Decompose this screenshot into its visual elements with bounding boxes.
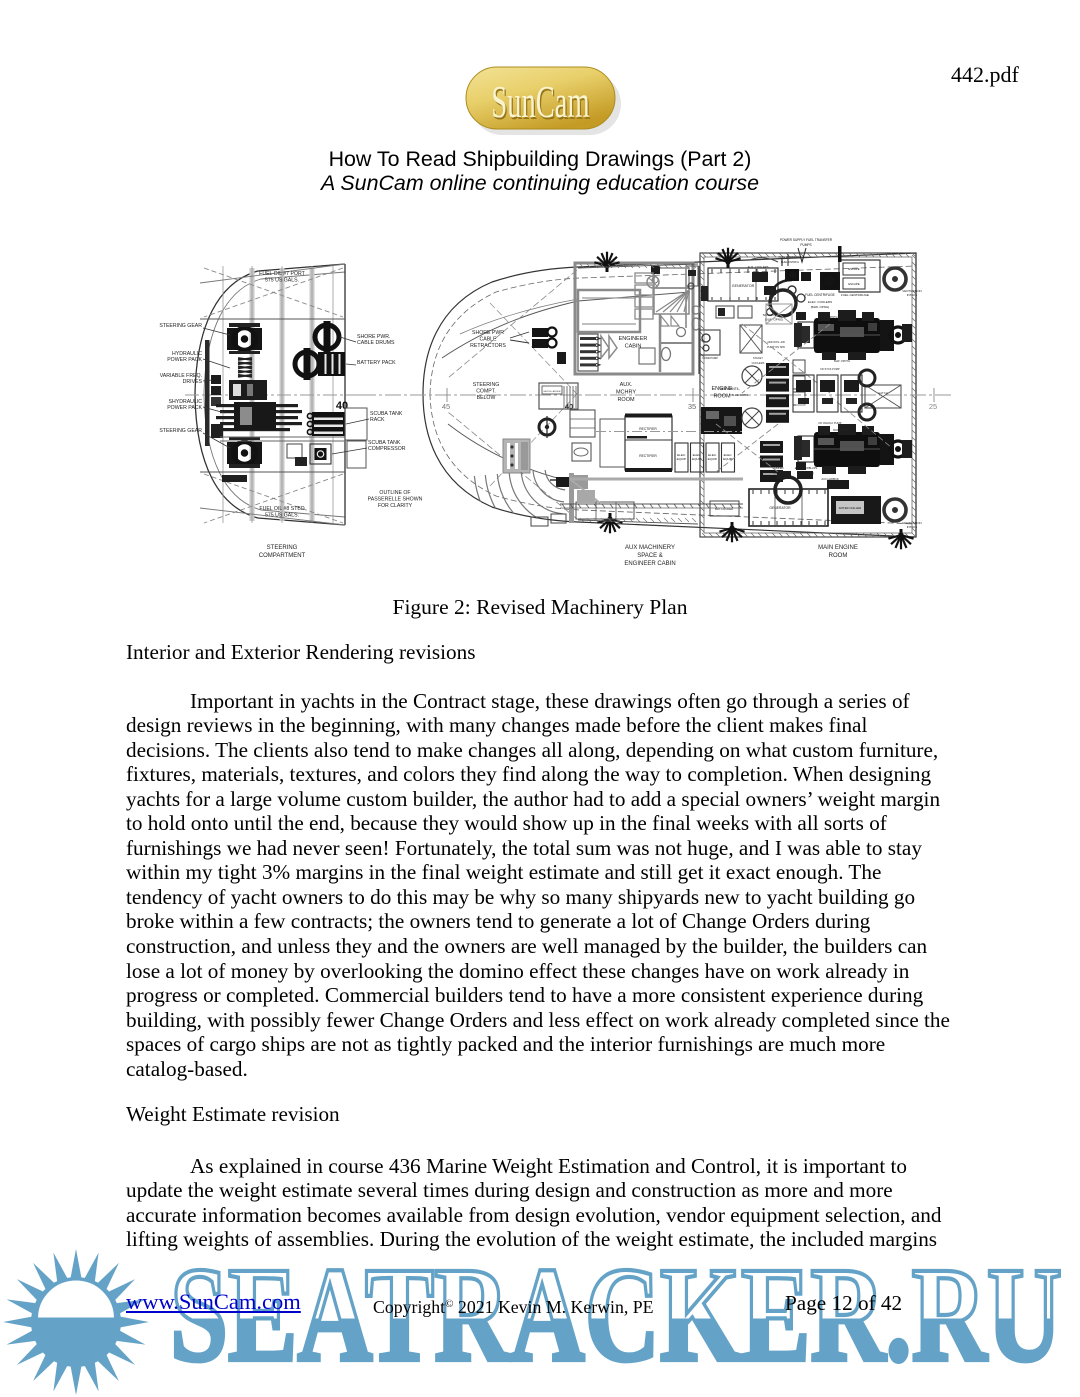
svg-text:INTAKE: INTAKE <box>907 293 918 297</box>
svg-text:FUEL CENTRIFUGE: FUEL CENTRIFUGE <box>805 293 835 297</box>
svg-text:FD STCK PUMP: FD STCK PUMP <box>820 367 840 371</box>
svg-text:PUMP ON SPD: PUMP ON SPD <box>767 345 785 349</box>
svg-text:FUEL OIL #8 STBD: FUEL OIL #8 STBD <box>259 506 304 512</box>
svg-text:AUX MACHINERY: AUX MACHINERY <box>625 545 675 551</box>
svg-text:575 US GALS.: 575 US GALS. <box>265 278 299 284</box>
svg-text:ESCAPE: ESCAPE <box>848 282 859 286</box>
svg-text:MCHRY: MCHRY <box>616 390 636 396</box>
svg-text:FUEL CNTRFG: FUEL CNTRFG <box>781 260 799 264</box>
svg-text:ENGINEER CABIN: ENGINEER CABIN <box>624 561 675 567</box>
svg-text:CABLE: CABLE <box>479 337 497 343</box>
svg-text:WATER CHILLER: WATER CHILLER <box>839 506 861 510</box>
svg-text:AUX. COOLERS: AUX. COOLERS <box>748 265 769 269</box>
svg-text:ADD NOS- AIR: ADD NOS- AIR <box>767 340 785 344</box>
svg-text:45: 45 <box>442 402 450 411</box>
svg-text:HATCH LADDER: HATCH LADDER <box>544 390 561 393</box>
svg-text:VARIABLE FREQ.: VARIABLE FREQ. <box>160 373 202 379</box>
svg-text:PUMPS: PUMPS <box>800 243 811 247</box>
svg-text:(BLW. OPNG): (BLW. OPNG) <box>811 305 830 309</box>
svg-text:25: 25 <box>929 402 937 411</box>
svg-text:SHORE PWR.: SHORE PWR. <box>357 334 390 340</box>
svg-text:GENERATOR: GENERATOR <box>732 284 755 288</box>
svg-text:ENGINE: ENGINE <box>711 386 732 392</box>
svg-text:STEERING GEAR: STEERING GEAR <box>159 428 202 434</box>
svg-text:STEERING: STEERING <box>473 382 500 388</box>
svg-text:BLUE. CNTFL: BLUE. CNTFL <box>732 393 749 397</box>
svg-text:COMPARTMENT: COMPARTMENT <box>259 553 306 559</box>
svg-text:INTAKE: INTAKE <box>907 525 918 529</box>
svg-text:DRIVES: DRIVES <box>183 379 203 385</box>
svg-text:SHORE PWR: SHORE PWR <box>472 330 504 336</box>
svg-text:COOLERS: COOLERS <box>752 361 765 365</box>
svg-text:SCUBA TANK: SCUBA TANK <box>368 440 401 446</box>
svg-text:ENGINEER: ENGINEER <box>619 336 648 342</box>
svg-text:BLW OPNTG: BLW OPNTG <box>822 315 837 319</box>
svg-text:ROOM: ROOM <box>713 394 731 400</box>
svg-text:ESCAPE: ESCAPE <box>848 267 859 271</box>
svg-text:EQUIP.: EQUIP. <box>677 457 687 461</box>
svg-text:35: 35 <box>688 402 696 411</box>
svg-text:BELOW: BELOW <box>477 395 496 401</box>
svg-text:STACEY: STACEY <box>753 356 763 360</box>
svg-text:40: 40 <box>336 400 348 412</box>
svg-text:SHYDRAULIC: SHYDRAULIC <box>169 399 203 405</box>
svg-text:COMPRESSOR: COMPRESSOR <box>368 446 406 452</box>
svg-text:AUX.: AUX. <box>620 382 633 388</box>
svg-text:GENERATOR: GENERATOR <box>769 506 791 510</box>
svg-text:FUEL CENTRIFUGE: FUEL CENTRIFUGE <box>841 293 869 297</box>
svg-text:STEERING GEAR: STEERING GEAR <box>159 323 202 329</box>
svg-text:ROOM: ROOM <box>617 397 635 403</box>
svg-text:FUEL CONTINUGE: FUEL CONTINUGE <box>779 255 802 259</box>
svg-text:BATTERY PACK: BATTERY PACK <box>357 360 396 366</box>
svg-text:BAT. LOCKER: BAT. LOCKER <box>715 507 733 511</box>
svg-text:POWER PACK: POWER PACK <box>167 357 202 363</box>
svg-text:SunCam: SunCam <box>491 77 589 127</box>
svg-text:HATCH: HATCH <box>878 391 888 395</box>
svg-text:RECTIFIER: RECTIFIER <box>639 454 657 458</box>
svg-text:(OPNL): (OPNL) <box>774 471 783 475</box>
svg-text:EQUIP.: EQUIP. <box>708 457 718 461</box>
svg-text:FUEL OIL #7 PORT: FUEL OIL #7 PORT <box>259 271 305 277</box>
svg-text:EQUIP.: EQUIP. <box>692 457 702 461</box>
svg-text:FD CKHOLF PUMP: FD CKHOLF PUMP <box>819 421 842 425</box>
svg-text:FOR CLARITY: FOR CLARITY <box>378 503 413 509</box>
svg-text:CABLE DRUMS: CABLE DRUMS <box>357 340 395 346</box>
svg-text:RECTIFIER: RECTIFIER <box>639 427 657 431</box>
svg-text:ELEC. COOLERS: ELEC. COOLERS <box>808 300 832 304</box>
svg-text:POWER PACK: POWER PACK <box>167 405 202 411</box>
svg-text:SPACE &: SPACE & <box>637 553 663 559</box>
svg-text:MAIN ENGINE: MAIN ENGINE <box>818 545 858 551</box>
svg-text:PASSERELLE SHOWN: PASSERELLE SHOWN <box>368 497 423 503</box>
svg-text:575 US GALS.: 575 US GALS. <box>265 513 299 519</box>
svg-text:OUTLINE OF: OUTLINE OF <box>379 490 410 496</box>
svg-text:RETRACTORS: RETRACTORS <box>470 343 506 349</box>
svg-text:HYDRAULIC: HYDRAULIC <box>172 351 202 357</box>
svg-text:BLW OPNCNG: BLW OPNCNG <box>833 428 851 432</box>
svg-text:SCUBA TANK: SCUBA TANK <box>370 411 403 417</box>
svg-text:RACK: RACK <box>370 417 385 423</box>
svg-text:STEERING: STEERING <box>267 545 298 551</box>
svg-text:CABIN: CABIN <box>625 344 642 350</box>
svg-text:POWER SUPPLY FUEL TRANSFER: POWER SUPPLY FUEL TRANSFER <box>780 238 833 242</box>
svg-text:(BLW. OPNS): (BLW. OPNS) <box>798 471 814 475</box>
svg-text:COND PUMP: COND PUMP <box>702 356 718 360</box>
svg-text:BLW. OPNTG: BLW. OPNTG <box>834 359 850 363</box>
svg-text:COMPT.: COMPT. <box>476 389 496 395</box>
svg-text:ROOM: ROOM <box>829 553 848 559</box>
svg-text:AUX HARBOR: AUX HARBOR <box>821 477 838 481</box>
